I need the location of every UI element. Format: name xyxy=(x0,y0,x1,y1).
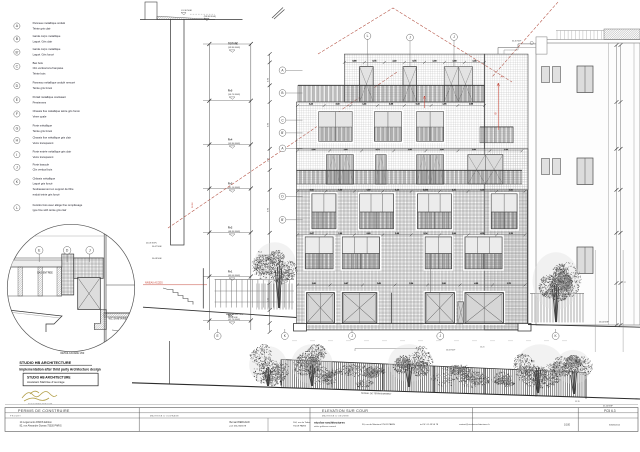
svg-text:Assistant Maîtrise d'ouvrage: Assistant Maîtrise d'ouvrage xyxy=(27,380,65,384)
svg-text:Teinte bois: Teinte bois xyxy=(33,72,47,76)
svg-text:Verre opale: Verre opale xyxy=(33,114,47,118)
svg-text:(42.70 NGF): (42.70 NGF) xyxy=(228,319,240,321)
svg-text:1.060: 1.060 xyxy=(423,189,429,191)
svg-text:Laqué. Gris clair: Laqué. Gris clair xyxy=(33,39,53,43)
svg-text:61.30 NGF: 61.30 NGF xyxy=(181,10,192,12)
svg-text:Teinte gris clair: Teinte gris clair xyxy=(33,26,51,30)
svg-text:nicolas+architectures: nicolas+architectures xyxy=(314,420,345,424)
svg-text:B': B' xyxy=(281,218,284,222)
svg-text:30, rue de Montreuil 75011 PAR: 30, rue de Montreuil 75011 PARIS xyxy=(362,423,396,426)
svg-text:(51.10 NGF): (51.10 NGF) xyxy=(228,187,240,189)
svg-text:(59.90 NGF): (59.90 NGF) xyxy=(204,16,216,18)
svg-text:Bernard BERGAUD: Bernard BERGAUD xyxy=(230,421,251,424)
svg-text:MAITRISE D'OEUVRE: MAITRISE D'OEUVRE xyxy=(322,415,349,418)
svg-text:F: F xyxy=(16,112,18,116)
svg-text:J: J xyxy=(16,166,18,170)
svg-text:Teinte gris foncé: Teinte gris foncé xyxy=(33,86,53,90)
svg-text:(45.50 NGF): (45.50 NGF) xyxy=(228,275,240,277)
svg-text:Clin vertical à la française: Clin vertical à la française xyxy=(33,66,64,70)
svg-text:enduit teinte gris foncé: enduit teinte gris foncé xyxy=(33,193,61,197)
svg-text:14 Logements PARIS Edition: 14 Logements PARIS Edition xyxy=(20,421,53,424)
svg-text:Soubassement en support de fil: Soubassement en support de filtre xyxy=(33,187,74,191)
svg-text:B: B xyxy=(495,112,497,116)
svg-text:contact@nicolasarchitectures.f: contact@nicolasarchitectures.fr xyxy=(459,423,490,426)
svg-text:NIVEAU ACCES: NIVEAU ACCES xyxy=(145,281,163,284)
svg-text:Fenêtre bois avec allège fine: Fenêtre bois avec allège fine remplissag… xyxy=(33,203,83,207)
svg-text:Verre transparent: Verre transparent xyxy=(33,155,54,159)
svg-text:(53.90 NGF): (53.90 NGF) xyxy=(228,143,240,145)
svg-text:82, rue Alexandre Dumas 75020: 82, rue Alexandre Dumas 75020 PARIS xyxy=(20,425,62,428)
svg-text:(56.08 NGF): (56.08 NGF) xyxy=(146,243,157,245)
svg-text:Garde corps métallique: Garde corps métallique xyxy=(33,47,61,51)
svg-text:60.40 NGF: 60.40 NGF xyxy=(512,41,522,43)
svg-text:B: B xyxy=(281,91,283,95)
svg-text:ELEVATION SUR COUR: ELEVATION SUR COUR xyxy=(322,409,368,413)
svg-text:I: I xyxy=(16,153,17,157)
svg-text:R+2: R+2 xyxy=(228,228,233,230)
svg-text:56.67 NGF: 56.67 NGF xyxy=(152,246,163,248)
svg-text:tel. N° 01 43 56 78: tel. N° 01 43 56 78 xyxy=(420,423,439,426)
svg-text:Verre transparent: Verre transparent xyxy=(33,141,54,145)
svg-text:R+5: R+5 xyxy=(228,91,233,93)
svg-text:56.05 NGF: 56.05 NGF xyxy=(599,321,610,323)
svg-text:DETAIL FACADE 1/50: DETAIL FACADE 1/50 xyxy=(61,352,85,355)
svg-text:R+1: R+1 xyxy=(228,272,233,274)
svg-text:A: A xyxy=(501,75,503,79)
svg-text:Panneau métallique ondulé: Panneau métallique ondulé xyxy=(33,21,66,25)
svg-text:56.08 NGF: 56.08 NGF xyxy=(228,317,239,319)
svg-text:Teinte gris foncé: Teinte gris foncé xyxy=(33,129,53,133)
svg-text:G: G xyxy=(16,127,19,131)
svg-text:55.35: 55.35 xyxy=(575,401,580,403)
svg-text:SAS ENTREE: SAS ENTREE xyxy=(37,272,53,275)
svg-text:(56.70 NGF): (56.70 NGF) xyxy=(228,94,240,96)
svg-text:Persiennes: Persiennes xyxy=(33,100,47,104)
svg-text:port 0612345678: port 0612345678 xyxy=(230,424,247,427)
svg-text:MARCHE ENTREE: MARCHE ENTREE xyxy=(226,313,244,316)
svg-text:(48.30 NGF): (48.30 NGF) xyxy=(228,231,240,233)
svg-text:PROJET: PROJET xyxy=(10,416,21,418)
svg-text:STUDIO HB ARCHITECTURE: STUDIO HB ARCHITECTURE xyxy=(19,361,71,365)
svg-text:Chassis fixe métallique gris c: Chassis fixe métallique gris clair xyxy=(33,136,71,140)
svg-text:Portail métallique coulissant: Portail métallique coulissant xyxy=(33,95,67,99)
svg-text:type fine with teinte gris cla: type fine with teinte gris clair xyxy=(33,208,67,212)
svg-text:Clin vertical bois: Clin vertical bois xyxy=(33,168,53,172)
svg-text:56.08 NGF: 56.08 NGF xyxy=(152,258,163,260)
svg-text:164, rue du Tabac: 164, rue du Tabac xyxy=(293,421,311,424)
svg-text:Laqué. Gris foncé: Laqué. Gris foncé xyxy=(33,53,55,57)
svg-text:Chassis fixe métallique teinte: Chassis fixe métallique teinte gris fonc… xyxy=(33,109,81,113)
svg-text:WC SANITAIRE: WC SANITAIRE xyxy=(109,318,127,321)
svg-text:75019 PARIS: 75019 PARIS xyxy=(293,424,307,427)
svg-text:atelier guillaume ramond: atelier guillaume ramond xyxy=(314,425,336,428)
svg-text:(59.90 NGF): (59.90 NGF) xyxy=(228,47,240,49)
svg-text:R+4: R+4 xyxy=(228,139,233,142)
svg-text:(45.50 NGF): (45.50 NGF) xyxy=(258,255,269,257)
svg-text:Laqué gris foncé: Laqué gris foncé xyxy=(33,182,53,186)
svg-text:B': B' xyxy=(15,50,18,54)
svg-text:TOITURE: TOITURE xyxy=(228,44,239,46)
svg-text:Bac bois: Bac bois xyxy=(33,61,44,65)
svg-text:L: L xyxy=(367,34,369,38)
svg-text:30/06/2012: 30/06/2012 xyxy=(609,425,621,427)
svg-text:MAITRISE D'OUVRAGE: MAITRISE D'OUVRAGE xyxy=(150,415,179,418)
svg-text:Implementation after third par: Implementation after third party Archite… xyxy=(19,368,100,372)
svg-text:J: J xyxy=(89,249,91,253)
svg-text:STUDIO HB ARCHITECTURE: STUDIO HB ARCHITECTURE xyxy=(27,375,70,379)
svg-text:E: E xyxy=(217,334,219,338)
svg-text:56.08 NGF: 56.08 NGF xyxy=(446,350,456,352)
svg-text:ht. 17: ht. 17 xyxy=(621,281,626,284)
svg-text:L: L xyxy=(16,206,18,210)
svg-text:Panneau métallique ondulé nerv: Panneau métallique ondulé nervuré xyxy=(33,81,76,85)
svg-text:Porte métallique: Porte métallique xyxy=(33,123,53,127)
svg-text:PERMIS DE CONSTRUIRE: PERMIS DE CONSTRUIRE xyxy=(18,409,70,413)
svg-text:1/100: 1/100 xyxy=(564,424,571,427)
svg-text:Garde corps métallique: Garde corps métallique xyxy=(33,34,61,38)
svg-text:55.10 NGF: 55.10 NGF xyxy=(603,405,614,407)
svg-text:Porte bascule: Porte bascule xyxy=(33,162,50,166)
svg-text:PC5 6.3: PC5 6.3 xyxy=(604,409,616,413)
svg-text:Porte entrée métallique gris c: Porte entrée métallique gris clair xyxy=(33,150,72,154)
svg-text:B': B' xyxy=(281,131,284,135)
svg-text:STUDIO HB ARCHITECTURE: STUDIO HB ARCHITECTURE xyxy=(28,403,53,406)
svg-text:56.20: 56.20 xyxy=(480,347,485,349)
svg-text:Châssis métallique: Châssis métallique xyxy=(33,176,56,180)
svg-text:56.06: 56.06 xyxy=(192,202,194,208)
